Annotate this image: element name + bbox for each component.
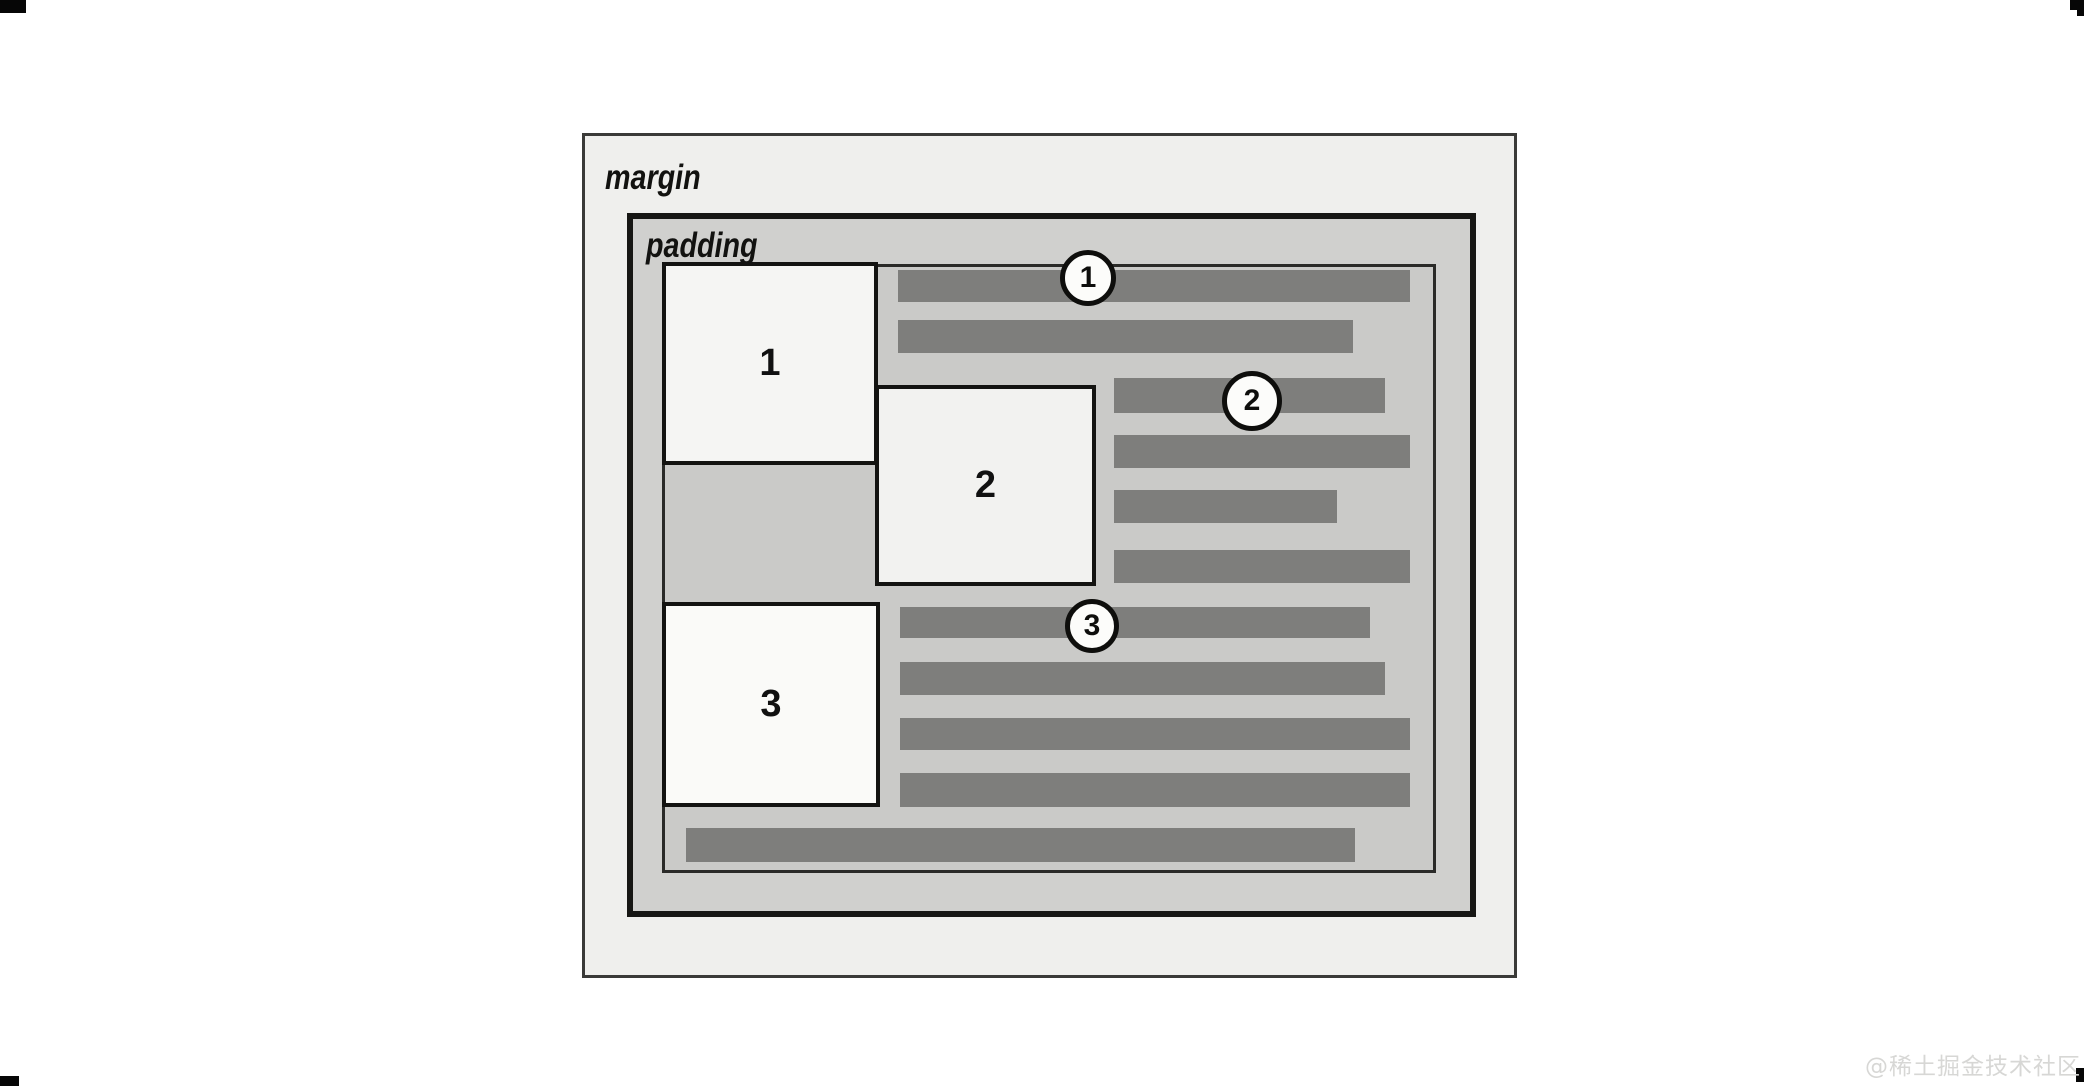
text-line: [900, 718, 1410, 750]
callout-badge-2: 2: [1222, 371, 1282, 431]
corner-mark-top-right-tail: [2077, 9, 2084, 16]
text-line: [900, 607, 1370, 638]
callout-badge-3: 3: [1065, 599, 1119, 653]
float-box-2: 2: [875, 385, 1096, 586]
callout-1-number: 1: [1080, 263, 1097, 293]
margin-label: margin: [605, 160, 701, 195]
float-box-2-number: 2: [975, 464, 996, 507]
content-box: 1 2 3 1 2 3: [662, 264, 1436, 873]
text-line: [900, 773, 1410, 807]
text-line: [686, 828, 1355, 862]
float-box-3-number: 3: [760, 683, 781, 726]
corner-mark-top-left: [0, 0, 26, 13]
padding-box: padding 1 2 3 1 2 3: [627, 213, 1476, 917]
float-box-1: 1: [662, 262, 878, 465]
callout-badge-1: 1: [1060, 250, 1116, 306]
text-line: [898, 270, 1410, 302]
text-line: [1114, 490, 1337, 523]
float-box-1-number: 1: [759, 342, 780, 385]
text-line: [1114, 550, 1410, 583]
float-box-3: 3: [662, 602, 880, 807]
watermark: @稀土掘金技术社区: [1865, 1047, 2081, 1081]
text-line: [900, 662, 1385, 695]
text-line: [1114, 435, 1410, 468]
margin-box: margin padding 1 2 3 1 2: [582, 133, 1517, 978]
padding-label: padding: [646, 228, 758, 263]
corner-mark-bottom-left: [0, 1076, 19, 1086]
text-line: [898, 320, 1353, 353]
callout-2-number: 2: [1244, 386, 1261, 416]
page: margin padding 1 2 3 1 2: [0, 0, 2084, 1086]
callout-3-number: 3: [1084, 611, 1101, 641]
